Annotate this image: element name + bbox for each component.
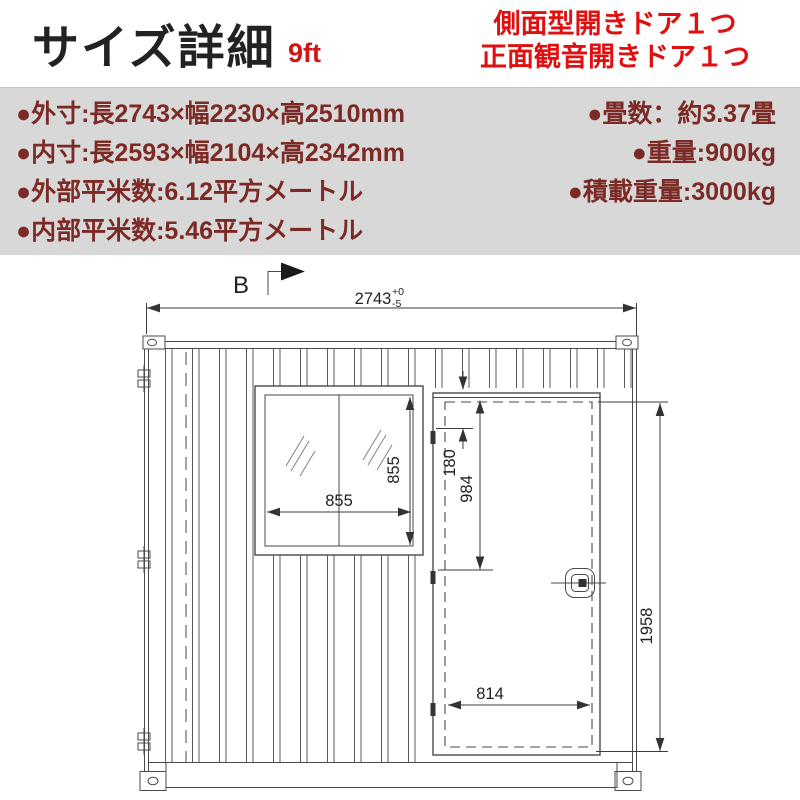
door [431, 393, 607, 755]
dim-window-width: 855 [325, 492, 353, 510]
dim-door-width: 814 [476, 685, 504, 703]
dim-tolerance-minus: -5 [392, 298, 401, 310]
view-label: B [233, 272, 249, 299]
elevation-svg: B 2743 +0 -5 855 855 180 984 1958 814 [0, 255, 800, 800]
spec-row-weight: ●重量:900kg [568, 134, 776, 173]
spec-row-tatami: ●畳数：約3.37畳 [568, 95, 776, 134]
dim-overall-width: 2743 [355, 290, 392, 308]
page-title-text: サイズ詳細 [32, 21, 276, 74]
spec-panel: ●外寸:長2743×幅2230×高2510mm ●内寸:長2593×幅2104×… [0, 87, 800, 258]
dim-tolerance-plus: +0 [392, 286, 404, 298]
spec-list-left: ●外寸:長2743×幅2230×高2510mm ●内寸:長2593×幅2104×… [16, 95, 405, 251]
spec-row-inner-size: ●内寸:長2593×幅2104×高2342mm [16, 134, 405, 173]
page-title: サイズ詳細 [22, 4, 332, 86]
container-elevation-drawing: B 2743 +0 -5 855 855 180 984 1958 814 [0, 255, 800, 800]
door-note-line1: 側面型開きドア１つ [455, 8, 775, 41]
dim-door-upper: 984 [458, 475, 476, 503]
door-note-line2: 正面観音開きドア１つ [455, 41, 775, 74]
header: サイズ詳細 9ft 側面型開きドア１つ 正面観音開きドア１つ [0, 0, 800, 87]
spec-row-outer-area: ●外部平米数:6.12平方メートル [16, 173, 405, 212]
door-note: 側面型開きドア１つ 正面観音開きドア１つ [455, 8, 775, 74]
spec-row-outer-size: ●外寸:長2743×幅2230×高2510mm [16, 95, 405, 134]
dim-window-height: 855 [385, 456, 403, 484]
dim-door-height: 1958 [638, 608, 656, 645]
view-direction-flag [268, 263, 305, 296]
spec-list-right: ●畳数：約3.37畳 ●重量:900kg ●積載重量:3000kg [568, 95, 776, 212]
spec-row-inner-area: ●内部平米数:5.46平方メートル [16, 212, 405, 251]
spec-row-capacity: ●積載重量:3000kg [568, 173, 776, 212]
dim-door-top-offset: 180 [441, 449, 459, 477]
size-tag: 9ft [288, 38, 321, 69]
